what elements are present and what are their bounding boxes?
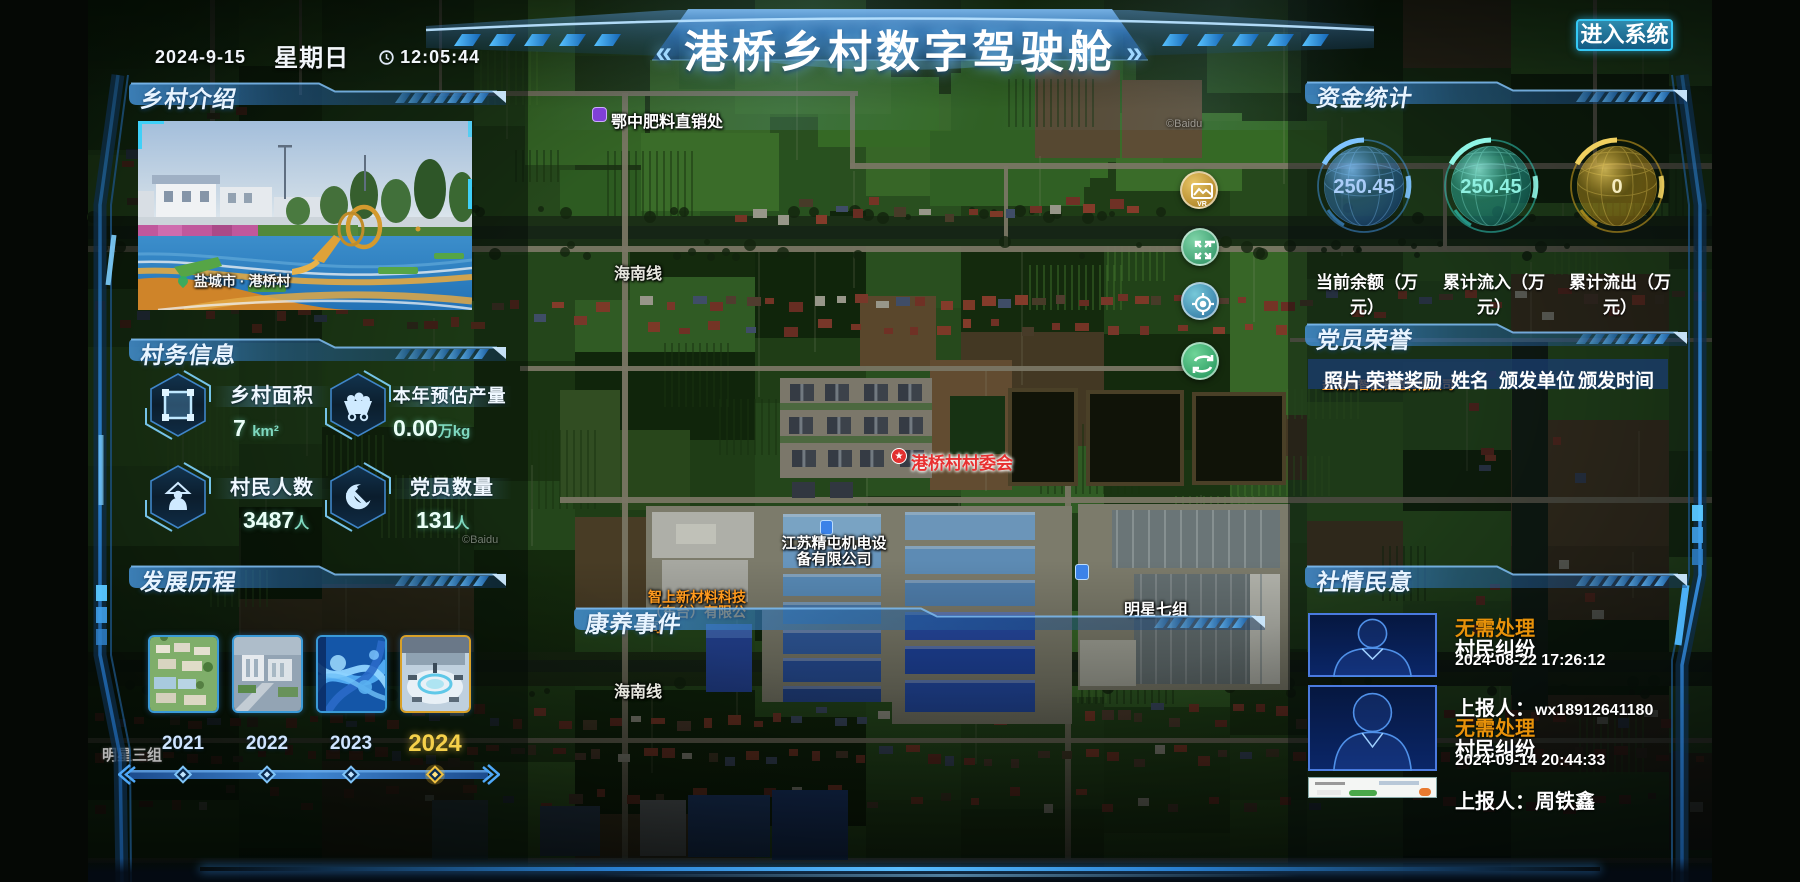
svg-text:250.45: 250.45 — [1460, 176, 1521, 198]
svg-text:250.45: 250.45 — [1333, 176, 1394, 198]
svg-text:0: 0 — [1611, 176, 1622, 198]
svg-text:VR: VR — [1197, 201, 1207, 208]
